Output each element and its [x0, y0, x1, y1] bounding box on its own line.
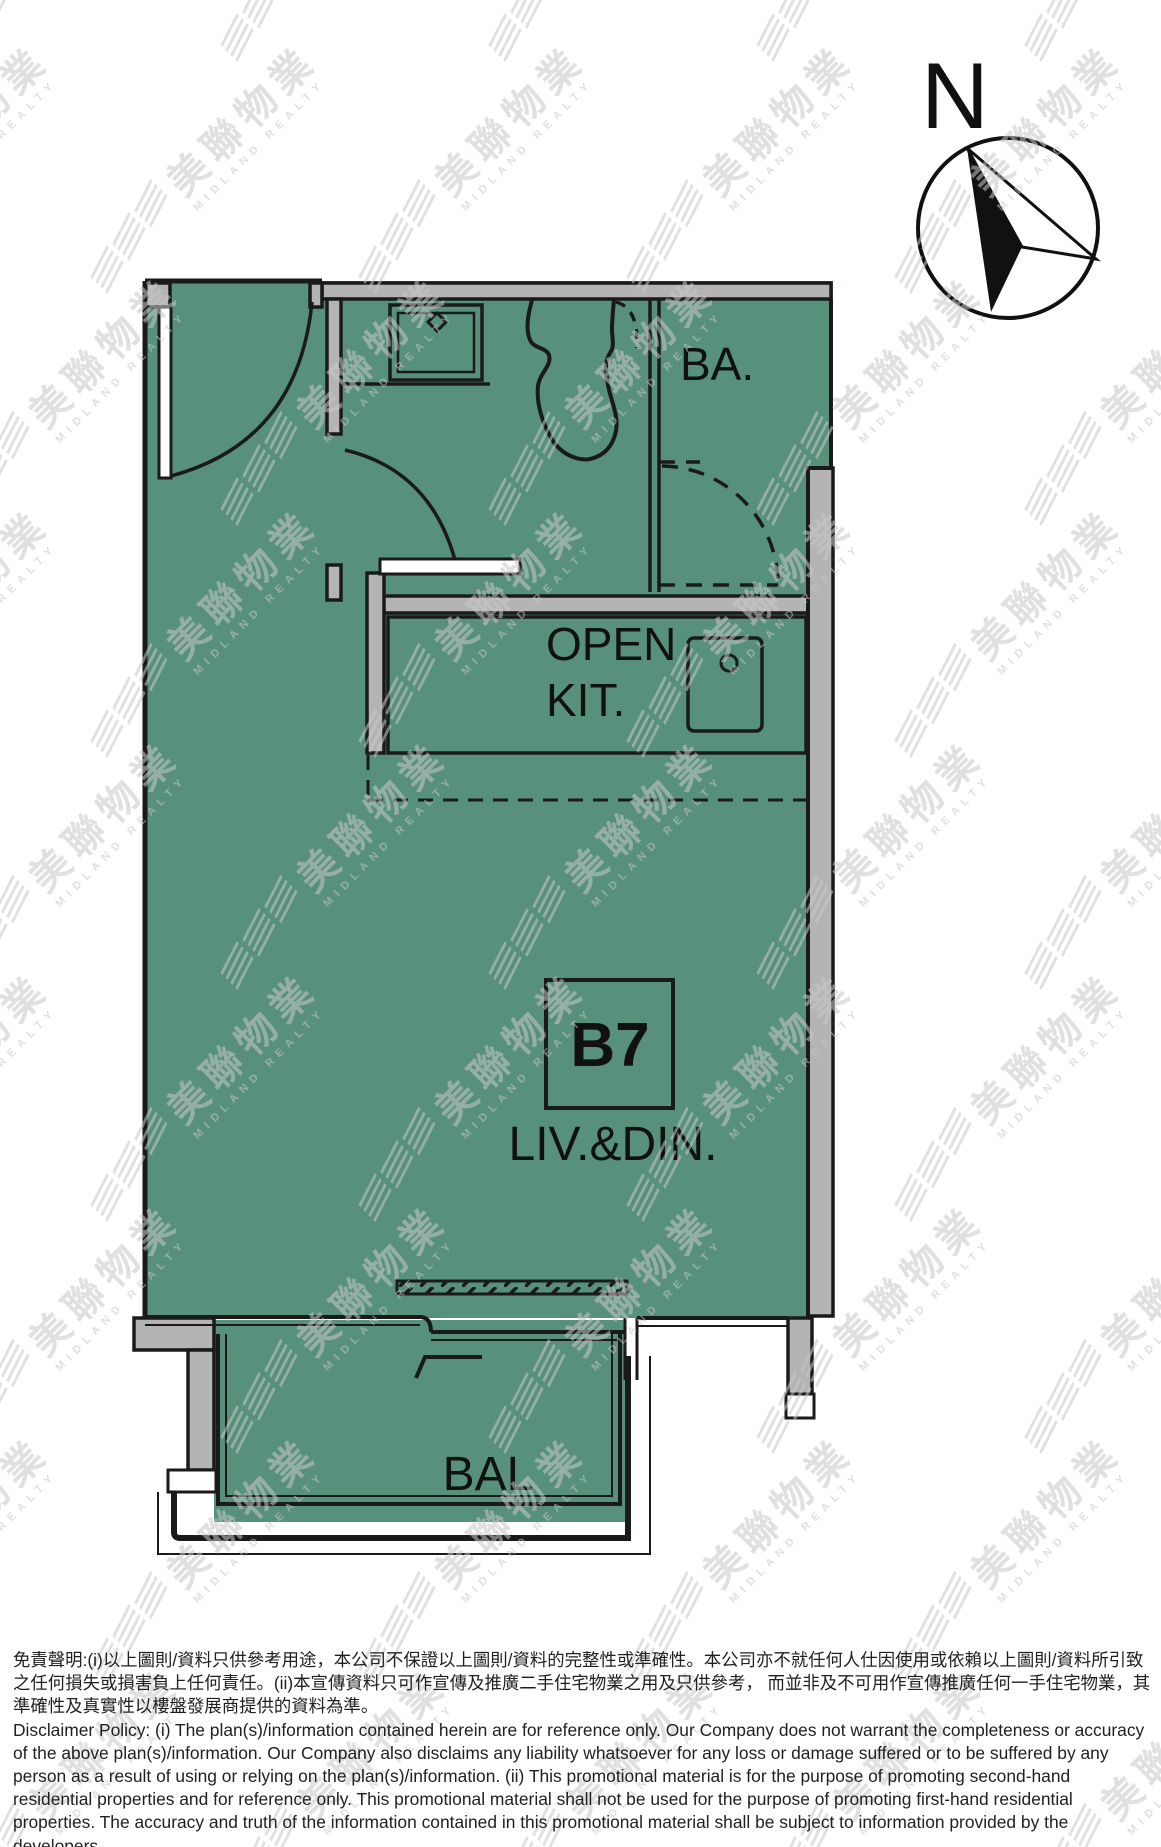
unit-floor — [145, 281, 833, 1522]
wall-balcony-left-block — [134, 1318, 214, 1350]
compass-north-label: N — [921, 43, 989, 148]
entrance-door-leaf — [159, 307, 171, 478]
balcony-left-window — [168, 1470, 216, 1492]
disclaimer-english: Disclaimer Policy: (i) The plan(s)/infor… — [13, 1719, 1151, 1847]
disclaimer-chinese: 免責聲明:(i)以上圖則/資料只供參考用途，本公司不保證以上圖則/資料的完整性或… — [13, 1649, 1151, 1719]
wall-right — [808, 468, 833, 1316]
floor-plan-drawing: BA. OPEN KIT. B7 LIV.&DIN. BAL N — [0, 0, 1161, 1847]
unit-label: B7 — [570, 1011, 649, 1080]
wall-kitchen-top — [368, 596, 808, 613]
window-hatch-strip — [397, 1281, 627, 1294]
wall-kitchen-left — [367, 573, 384, 753]
floorplan-page: BA. OPEN KIT. B7 LIV.&DIN. BAL N 美聯物業MID… — [0, 0, 1161, 1847]
wall-top — [322, 283, 831, 299]
bottom-right-notch — [786, 1394, 814, 1418]
bath-door-leaf — [380, 559, 520, 574]
wall-balcony-left-strip — [188, 1350, 214, 1470]
compass: N — [918, 43, 1098, 318]
wall-bath-partition-upper — [327, 299, 341, 434]
wall-entrance-stub-left — [145, 283, 170, 307]
label-bathroom: BA. — [680, 338, 754, 390]
balcony-floor — [214, 1320, 626, 1522]
disclaimer: 免責聲明:(i)以上圖則/資料只供參考用途，本公司不保證以上圖則/資料的完整性或… — [13, 1649, 1151, 1847]
label-balcony: BAL — [443, 1448, 534, 1501]
wall-bath-partition-lower — [327, 565, 341, 600]
label-kitchen-line2: KIT. — [546, 674, 625, 726]
label-kitchen-line1: OPEN — [546, 618, 676, 670]
label-living-dining: LIV.&DIN. — [509, 1118, 718, 1171]
